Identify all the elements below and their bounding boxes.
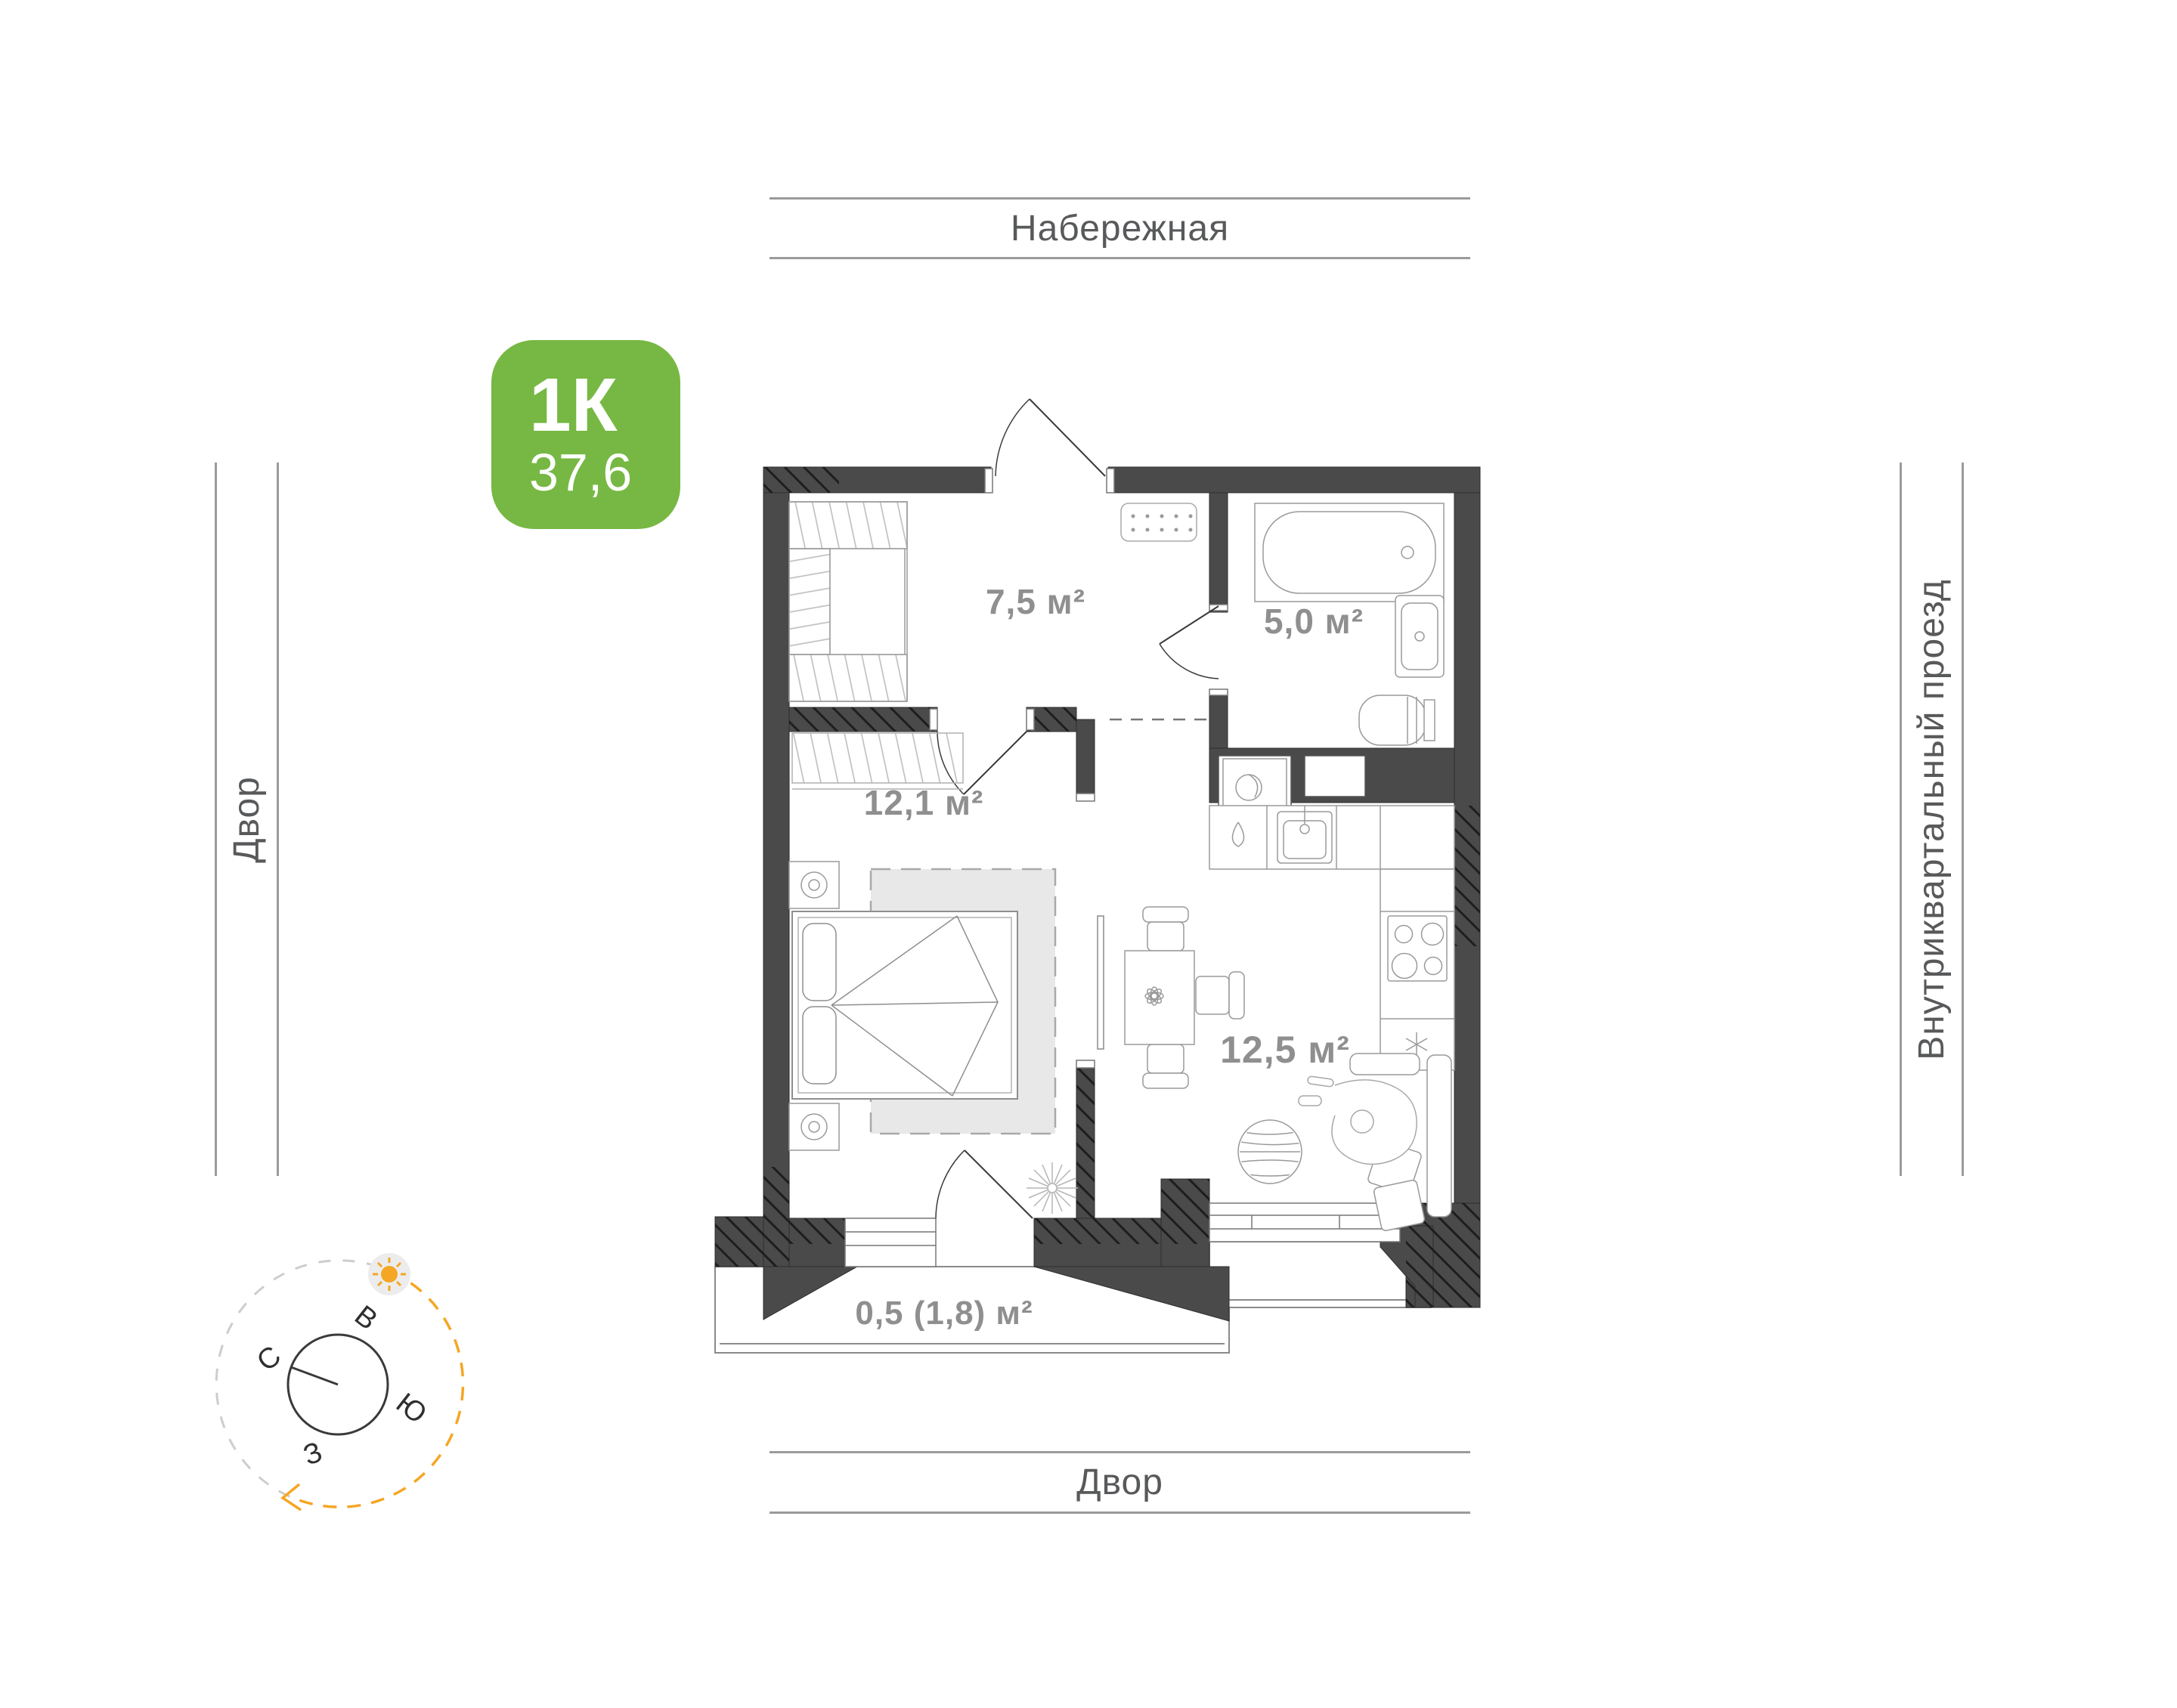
badge-area-value: 37,6 (529, 443, 680, 502)
street-label-bottom-text: Двор (1076, 1462, 1163, 1503)
apartment-type-badge: 1К 37,6 (491, 340, 680, 529)
person-figure (1299, 1076, 1417, 1165)
kitchen-counter (1209, 806, 1454, 869)
sofa-pillow (1373, 1180, 1426, 1232)
bathroom-area-label: 5,0 м² (1264, 602, 1364, 641)
bedroom-window (845, 1218, 936, 1267)
street-label-right-text: Внутриквартальный проезд (1911, 579, 1952, 1060)
street-label-bottom: Двор (770, 1451, 1470, 1514)
street-label-left-text: Двор (226, 776, 268, 863)
bed (792, 911, 1017, 1099)
arc-arrowhead (283, 1484, 301, 1510)
balcony-area-label: 0,5 (1,8) м² (855, 1295, 1033, 1332)
street-label-top: Набережная (770, 197, 1470, 259)
compass-west: З (299, 1436, 327, 1471)
kitchen-sink (1277, 806, 1332, 863)
plant-icon (1027, 1162, 1078, 1214)
chair (1229, 972, 1244, 1019)
living-window (1209, 1203, 1400, 1242)
floorplan-page: Набережная Двор Двор Внутриквартальный п… (0, 0, 2177, 1708)
bathtub (1255, 503, 1444, 602)
bedroom-area-label: 12,1 м² (864, 783, 984, 822)
pillow (803, 1007, 836, 1084)
chair (1196, 976, 1229, 1014)
compass-south: Ю (390, 1388, 432, 1431)
street-label-top-text: Набережная (1011, 208, 1229, 249)
sun-icon (368, 1253, 410, 1295)
chair (1143, 907, 1188, 922)
compass-east: В (348, 1300, 383, 1337)
chair (1147, 922, 1184, 951)
kitchen-living-area-label: 12,5 м² (1220, 1029, 1350, 1071)
pillow (803, 924, 836, 1001)
street-label-left: Двор (215, 463, 279, 1176)
bathroom-door (1160, 606, 1219, 679)
entrance-door (996, 399, 1105, 476)
compass-north: С (251, 1340, 286, 1378)
hallway-wardrobe (789, 502, 907, 701)
hallway-area-label: 7,5 м² (986, 582, 1085, 621)
nightstand-top (789, 862, 839, 908)
badge-rooms-label: 1К (529, 367, 680, 443)
floor-plan: 7,5 м² 5,0 м² 12,1 м² 12,5 м² 0,5 (1,8) … (703, 378, 1497, 1360)
chair (1147, 1044, 1184, 1073)
sliding-door-panel (1098, 916, 1104, 1049)
bedroom-wardrobe (792, 733, 963, 789)
nightstand-bottom (789, 1103, 839, 1150)
round-rug (1237, 1120, 1303, 1184)
doormat (1121, 503, 1197, 541)
balcony-door (936, 1150, 1033, 1218)
toilet (1359, 695, 1435, 745)
street-label-right: Внутриквартальный проезд (1900, 463, 1964, 1176)
bathroom-sink (1395, 596, 1444, 677)
chair (1143, 1073, 1188, 1088)
compass: В С Ю З (181, 1202, 514, 1534)
duct-shaft (1305, 756, 1365, 797)
kitchen-right-column (1380, 869, 1454, 1070)
